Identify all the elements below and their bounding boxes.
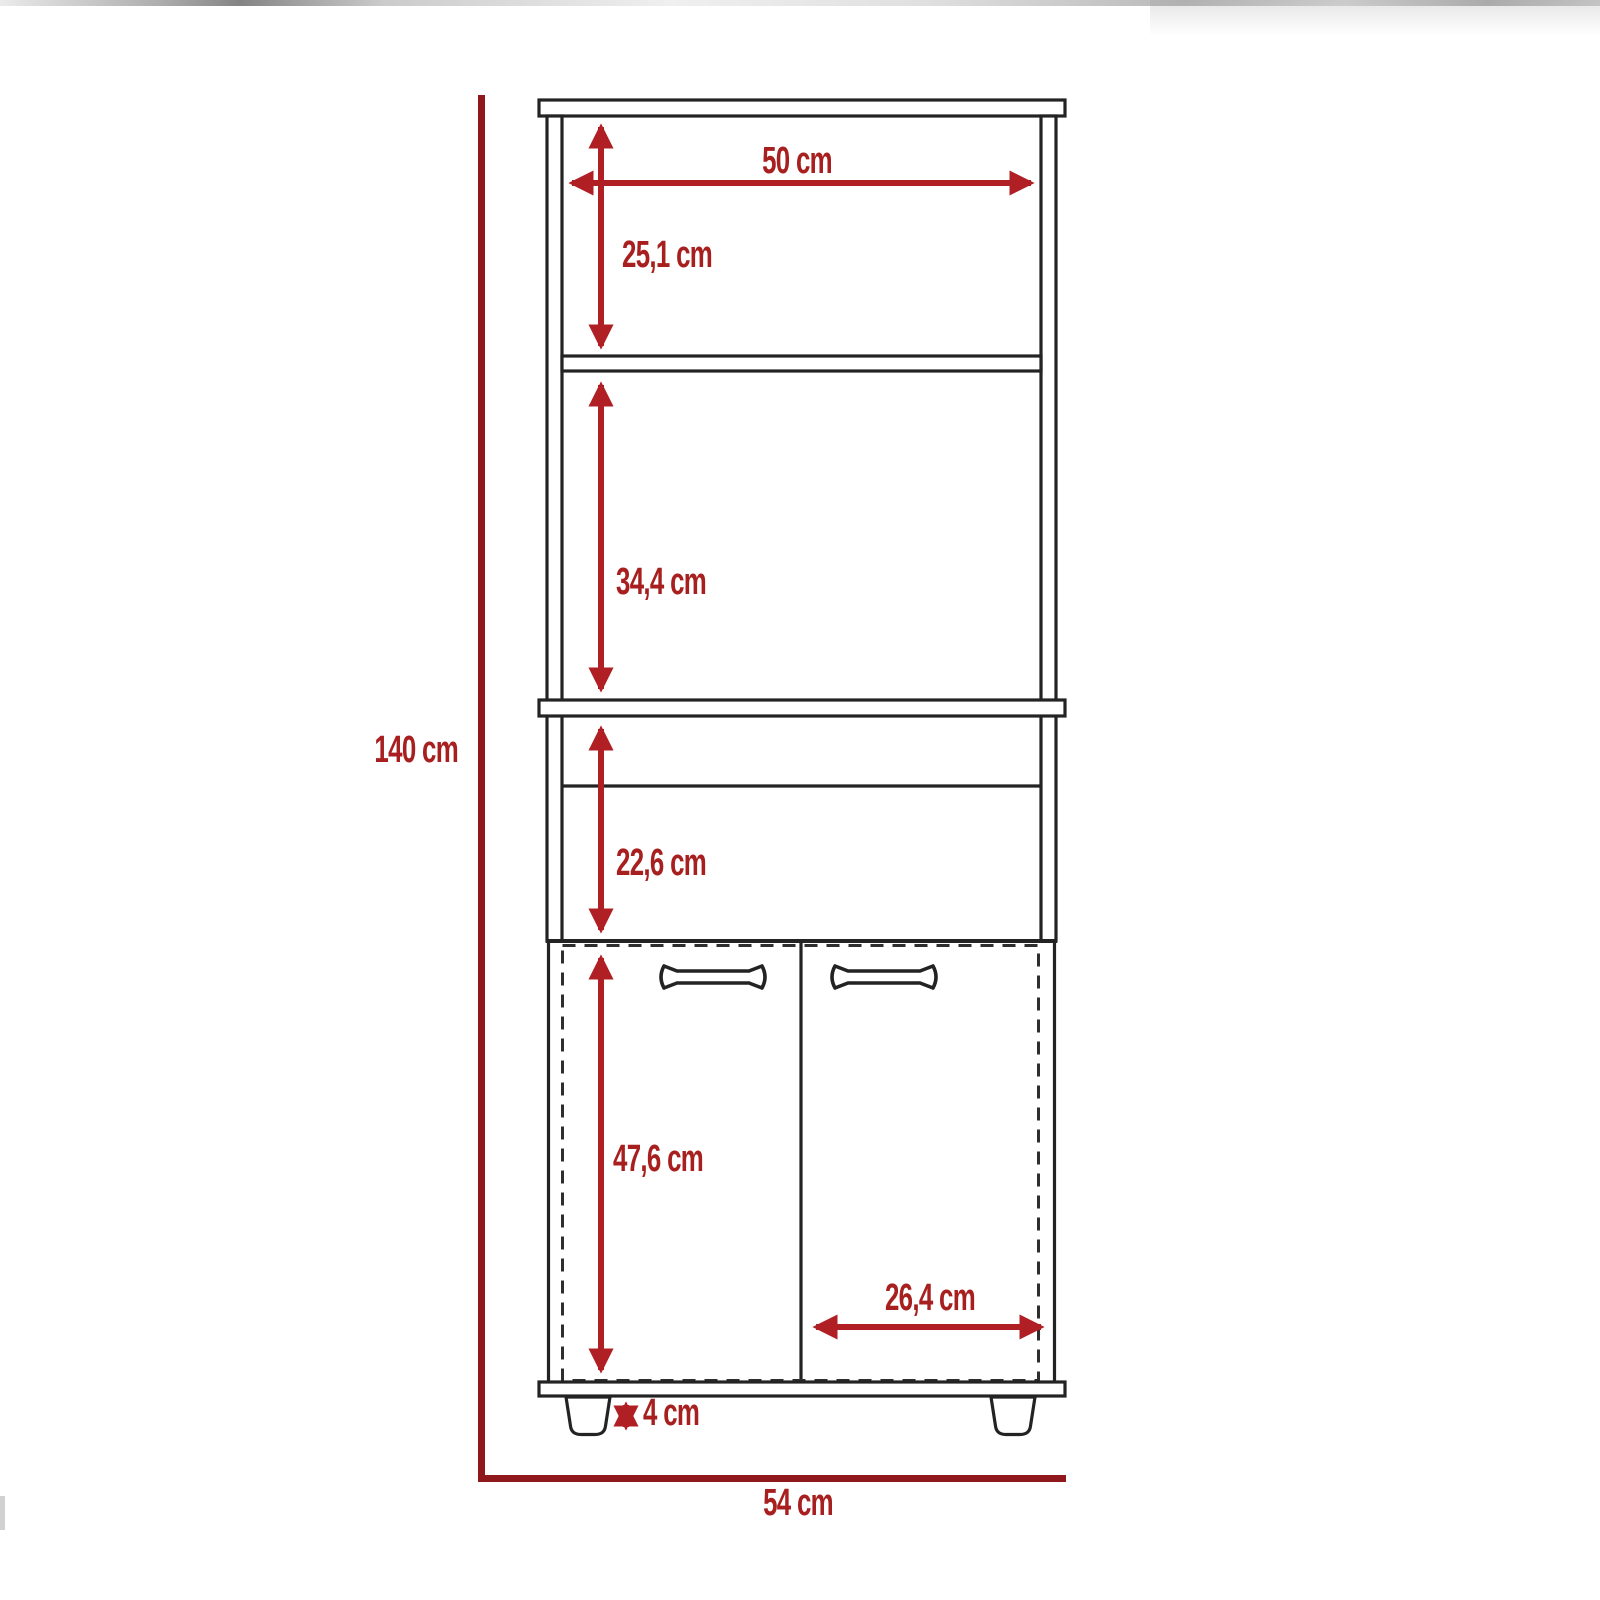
- right-leg: [991, 1397, 1035, 1435]
- dimension-label-lower-compartment-height: 22,6 cm: [616, 844, 706, 882]
- door-handle-left: [661, 966, 765, 988]
- dimension-diagram: 50 cm 25,1 cm 34,4 cm 140 cm 22,6 cm 47,…: [0, 0, 1600, 1600]
- right-side-panel: [1041, 116, 1056, 941]
- dimension-label-overall-width: 54 cm: [744, 1484, 853, 1522]
- dimension-label-interior-width: 50 cm: [743, 142, 852, 180]
- dimension-label-door-width: 26,4 cm: [879, 1279, 981, 1317]
- dimension-label-middle-compartment-height: 34,4 cm: [616, 563, 706, 601]
- left-side-panel: [547, 116, 562, 941]
- dimension-label-door-height: 47,6 cm: [613, 1140, 703, 1178]
- counter-shelf: [539, 700, 1065, 716]
- dimension-label-leg-height: 4 cm: [643, 1394, 699, 1432]
- upper-shelf: [562, 356, 1041, 371]
- top-board: [539, 100, 1065, 116]
- left-leg: [566, 1397, 610, 1435]
- bottom-board: [539, 1382, 1065, 1396]
- cabinet-line-drawing: [0, 0, 1600, 1600]
- door-handle-right: [832, 966, 936, 988]
- dimension-label-overall-height: 140 cm: [349, 731, 458, 769]
- dimension-label-upper-compartment-height: 25,1 cm: [622, 236, 712, 274]
